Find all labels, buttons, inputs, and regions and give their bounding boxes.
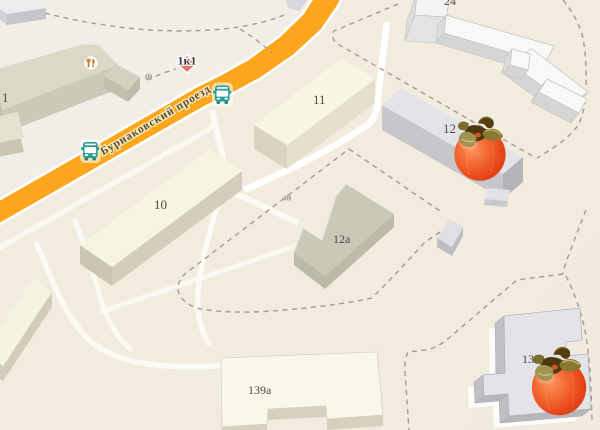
svg-text:12: 12 (443, 121, 456, 136)
svg-text:10: 10 (154, 197, 167, 212)
svg-text:139а: 139а (248, 383, 272, 397)
svg-text:11: 11 (313, 92, 326, 107)
svg-text:1: 1 (2, 90, 9, 105)
svg-text:1к1: 1к1 (178, 54, 197, 68)
svg-text:24: 24 (444, 0, 456, 8)
svg-text:12а: 12а (333, 232, 351, 246)
